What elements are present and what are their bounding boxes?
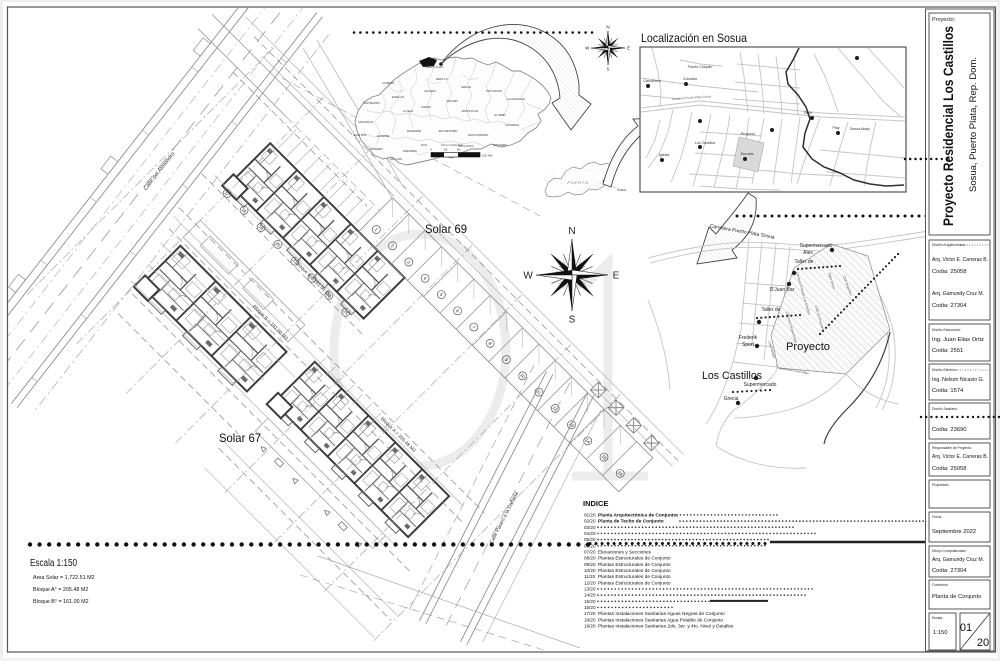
svg-text:Arq. Victor E. Carreras B.: Arq. Victor E. Carreras B. (932, 454, 988, 460)
svg-text:SANTIAGO R.: SANTIAGO R. (358, 121, 374, 124)
svg-text:Codia: 23690: Codia: 23690 (932, 427, 967, 433)
svg-text:Solar 67: Solar 67 (219, 431, 261, 445)
svg-text:Codia: 27304: Codia: 27304 (932, 303, 967, 309)
svg-text:Grecia: Grecia (724, 396, 739, 402)
svg-text:Proyecto: Proyecto (741, 132, 755, 136)
svg-text:11/20: 11/20 (584, 574, 596, 579)
svg-text:Los Castillos: Los Castillos (702, 370, 762, 382)
svg-text:Sport: Sport (742, 342, 755, 348)
svg-text:E: E (627, 46, 630, 51)
svg-text:Ing. Juan Elias Ortiz: Ing. Juan Elias Ortiz (932, 337, 984, 343)
svg-text:01: 01 (960, 622, 972, 634)
svg-text:Puerto Chiquito: Puerto Chiquito (688, 65, 713, 69)
svg-text:ISLA CATALINA: ISLA CATALINA (441, 143, 462, 147)
svg-text:18/20: 18/20 (584, 617, 596, 622)
svg-text:Dibujo Computarizado:: Dibujo Computarizado: (932, 549, 967, 553)
svg-text:Arq. Victor E. Carreras B.: Arq. Victor E. Carreras B. (932, 257, 988, 263)
svg-text:Propietario:: Propietario: (932, 483, 949, 487)
svg-text:Diseño Arquitectónico:: Diseño Arquitectónico: (932, 243, 966, 247)
svg-text:Codia: 25058: Codia: 25058 (932, 466, 967, 472)
svg-text:17/20: 17/20 (584, 611, 596, 616)
svg-text:13/20: 13/20 (584, 587, 596, 592)
svg-text:Iglesia: Iglesia (659, 153, 669, 157)
svg-text:06/20: 06/20 (584, 543, 596, 548)
svg-text:Codia: 27304: Codia: 27304 (932, 568, 967, 574)
svg-text:01/20: 01/20 (584, 513, 596, 518)
svg-text:Plantas Estructurales de Conju: Plantas Estructurales de Conjunto (598, 562, 671, 568)
svg-text:BARAHONA: BARAHONA (403, 150, 417, 153)
svg-text:100 KM: 100 KM (482, 154, 493, 158)
svg-text:W: W (585, 46, 590, 51)
svg-text:Ing. Nelson Nicasio G.: Ing. Nelson Nicasio G. (932, 377, 984, 383)
svg-text:Sosua, Puerto Plata, Rep. Dom.: Sosua, Puerto Plata, Rep. Dom. (968, 57, 978, 192)
svg-text:Codia: 1574: Codia: 1574 (932, 388, 964, 394)
svg-text:SANTO DOMINGO: SANTO DOMINGO (468, 134, 489, 137)
svg-text:PUERTO: PUERTO (567, 180, 588, 185)
svg-text:Plantas Estructurales de Conju: Plantas Estructurales de Conjunto (598, 574, 671, 580)
svg-text:10/20: 10/20 (584, 568, 596, 573)
svg-text:25: 25 (444, 148, 448, 152)
svg-text:N: N (606, 25, 609, 30)
svg-text:Planta de Conjunto: Planta de Conjunto (932, 594, 981, 600)
svg-text:D'Juan Bar: D'Juan Bar (770, 287, 795, 293)
svg-text:Localización en Sosua: Localización en Sosua (641, 31, 747, 45)
svg-text:Contenido:: Contenido: (932, 583, 948, 587)
svg-text:Bloque B° = 161.00 M2: Bloque B° = 161.00 M2 (33, 599, 89, 605)
svg-text:Gasolinera: Gasolinera (643, 79, 660, 83)
svg-text:15/20: 15/20 (584, 599, 596, 604)
svg-text:Planta Arquitectónica de Conju: Planta Arquitectónica de Conjunto, (598, 513, 678, 519)
svg-text:Proyecto Residencial Los Casti: Proyecto Residencial Los Castillos (941, 26, 956, 226)
svg-text:Elevaciones y Secciones: Elevaciones y Secciones (598, 550, 652, 556)
svg-text:Solar 69: Solar 69 (425, 222, 467, 236)
svg-text:SAN CRISTOBAL: SAN CRISTOBAL (438, 130, 458, 133)
svg-text:Area Solar = 1,722.51 M2: Area Solar = 1,722.51 M2 (33, 575, 95, 581)
svg-text:19/20: 19/20 (584, 624, 596, 629)
svg-text:LA VEGA: LA VEGA (403, 110, 414, 113)
svg-text:Escala 1:150: Escala 1:150 (30, 558, 77, 569)
svg-text:Plantas Instalaciones Sanitari: Plantas Instalaciones Sanitarias Aguas N… (598, 611, 725, 617)
svg-text:SALCEDO: SALCEDO (424, 90, 436, 93)
svg-text:Fecha: Fecha (932, 515, 942, 519)
svg-text:S: S (606, 66, 609, 71)
svg-text:05/20: 05/20 (584, 537, 596, 542)
svg-text:Los Castillos: Los Castillos (695, 141, 716, 145)
svg-text:SANCHEZ: SANCHEZ (446, 100, 458, 103)
svg-text:MONTECRISTI: MONTECRISTI (364, 102, 381, 105)
svg-text:Taller: Taller (804, 111, 813, 115)
svg-text:ESPAILLAT: ESPAILLAT (392, 96, 405, 99)
svg-text:SANTIAGO: SANTIAGO (370, 148, 382, 151)
svg-text:Sosua Abajo: Sosua Abajo (850, 127, 870, 131)
svg-text:SAMANA: SAMANA (461, 86, 472, 89)
svg-text:MONSENOR: MONSENOR (407, 130, 421, 133)
svg-text:Plantas Estructurales de Conju: Plantas Estructurales de Conjunto (598, 568, 671, 574)
svg-text:Diseño Estructural:: Diseño Estructural: (932, 328, 961, 332)
svg-text:Plantas Instalaciones Sanitari: Plantas Instalaciones Sanitarias 2do, 3e… (598, 624, 734, 630)
svg-text:LUPERON: LUPERON (382, 82, 394, 85)
svg-text:Codia: 25058: Codia: 25058 (932, 269, 967, 275)
svg-text:07/20: 07/20 (584, 550, 596, 555)
svg-text:ELIAS PINA: ELIAS PINA (353, 134, 366, 137)
svg-text:LA ALTAGRACIA: LA ALTAGRACIA (507, 98, 526, 101)
svg-text:Frederik: Frederik (739, 335, 758, 341)
svg-text:Supermercado: Supermercado (744, 382, 777, 388)
svg-text:INDICE: INDICE (583, 499, 608, 508)
svg-text:14/20: 14/20 (584, 593, 596, 598)
svg-text:S: S (569, 314, 576, 325)
svg-text:AZUA: AZUA (421, 144, 428, 147)
svg-text:08/20: 08/20 (584, 556, 596, 561)
svg-text:Escala:: Escala: (932, 616, 943, 620)
svg-text:Play: Play (833, 126, 840, 130)
svg-text:Planta de Techo de Conjunto: Planta de Techo de Conjunto (598, 519, 664, 525)
svg-text:Diseño Sanitario:: Diseño Sanitario: (932, 407, 958, 411)
svg-text:Colmado: Colmado (683, 77, 697, 81)
svg-text:Plantas Instalaciones Sanitari: Plantas Instalaciones Sanitarias Agua Po… (598, 617, 723, 623)
svg-text:Bloque A° = 205.48 M2: Bloque A° = 205.48 M2 (33, 587, 88, 593)
svg-text:SAN JUAN: SAN JUAN (390, 158, 402, 161)
svg-text:MARIA T.S.: MARIA T.S. (436, 78, 449, 81)
svg-text:Taller de: Taller de (795, 259, 814, 265)
svg-text:03/20: 03/20 (584, 525, 596, 530)
svg-text:Plantas Estructurales de Conju: Plantas Estructurales de Conjunto (598, 580, 671, 586)
svg-text:LA ROMANA: LA ROMANA (505, 124, 519, 127)
svg-text:04/20: 04/20 (584, 531, 596, 536)
svg-text:DUARTE: DUARTE (421, 106, 431, 109)
svg-text:50: 50 (457, 148, 461, 152)
svg-text:Diseño Eléctrico:: Diseño Eléctrico: (932, 368, 957, 372)
svg-text:EL SEIBO: EL SEIBO (495, 114, 506, 117)
svg-text:02/20: 02/20 (584, 519, 596, 524)
svg-text:VALVERDE: VALVERDE (377, 135, 390, 138)
svg-text:12/20: 12/20 (584, 580, 596, 585)
svg-text:Escuela: Escuela (741, 152, 754, 156)
svg-text:09/20: 09/20 (584, 562, 596, 567)
svg-text:1:150: 1:150 (933, 630, 948, 636)
svg-text:Proyecto:: Proyecto: (932, 17, 956, 23)
svg-text:Codia: 2551: Codia: 2551 (932, 348, 963, 354)
svg-text:Taller de: Taller de (762, 307, 781, 313)
svg-text:HATO MAYOR: HATO MAYOR (486, 90, 502, 93)
svg-text:E: E (613, 271, 620, 282)
svg-text:Supermercado: Supermercado (800, 243, 833, 249)
svg-text:Septiembre 2022: Septiembre 2022 (932, 529, 976, 535)
svg-text:Alex: Alex (803, 250, 813, 256)
svg-text:20: 20 (977, 637, 989, 649)
svg-text:SAN PEDRO: SAN PEDRO (493, 144, 507, 147)
svg-text:Sosua: Sosua (617, 188, 626, 192)
svg-text:16/20: 16/20 (584, 605, 596, 610)
svg-text:Arq. Gamundy Cruz M.: Arq. Gamundy Cruz M. (932, 557, 984, 563)
svg-text:MONTE PLATA: MONTE PLATA (462, 110, 479, 113)
svg-text:W: W (523, 271, 533, 282)
svg-text:N: N (568, 226, 575, 237)
svg-text:Arq. Gamundy Cruz M.: Arq. Gamundy Cruz M. (932, 291, 984, 297)
svg-text:Responsable de Proyecto:: Responsable de Proyecto: (932, 446, 972, 450)
svg-text:Proyecto: Proyecto (786, 341, 830, 353)
svg-text:Plantas Estructurales de Conju: Plantas Estructurales de Conjunto (598, 556, 671, 562)
